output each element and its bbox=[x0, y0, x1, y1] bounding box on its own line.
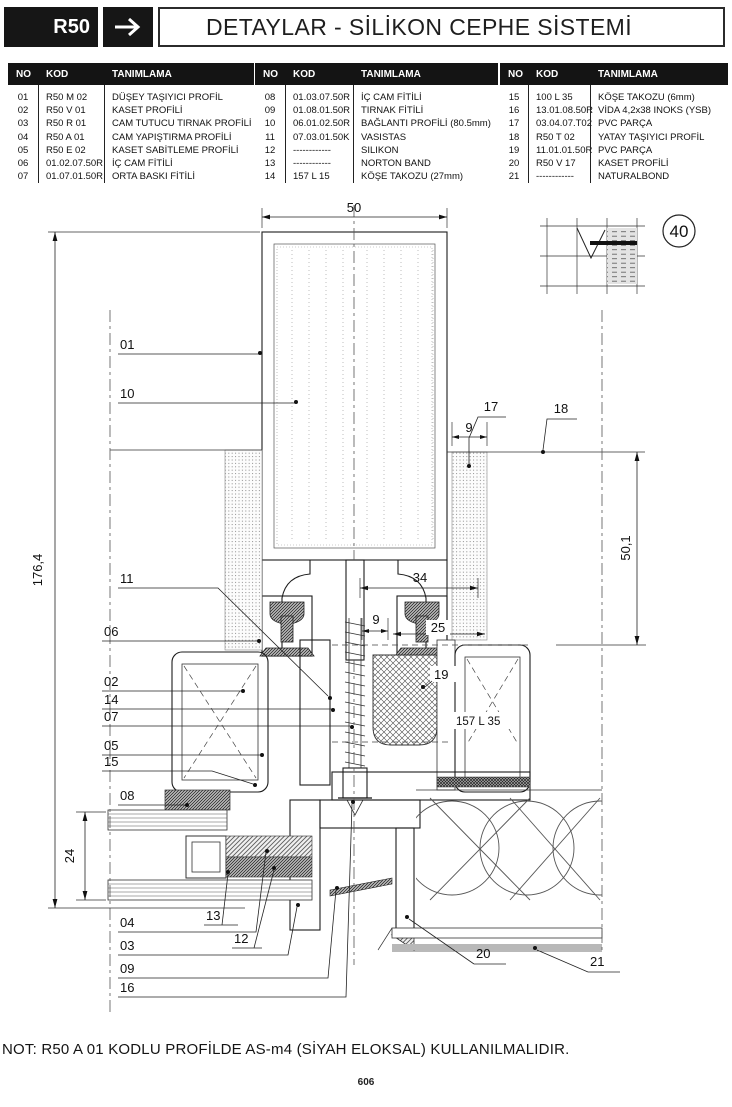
dim-width-50: 50 bbox=[262, 200, 447, 228]
callout-label: 11 bbox=[120, 571, 134, 586]
dim-label: 24 bbox=[62, 849, 77, 863]
callout-label: 03 bbox=[120, 938, 134, 953]
insulation bbox=[405, 790, 647, 900]
callout-label: 01 bbox=[120, 337, 134, 352]
callout-label: 16 bbox=[120, 980, 134, 995]
dim-9-right: 9 bbox=[452, 420, 487, 446]
callout-label: 10 bbox=[120, 386, 134, 401]
page-number: 606 bbox=[0, 1077, 732, 1088]
dim-label: 176,4 bbox=[30, 554, 45, 587]
detail-number-circle: 40 bbox=[663, 215, 695, 247]
callout-label: 19 bbox=[434, 667, 448, 682]
mullion-profile bbox=[262, 232, 447, 560]
callout-label: 09 bbox=[120, 961, 134, 976]
callout-label: 06 bbox=[104, 624, 118, 639]
callout-label: 14 bbox=[104, 692, 118, 707]
callout-label: 18 bbox=[554, 401, 568, 416]
callout-label: 15 bbox=[104, 754, 118, 769]
dim-label: 50 bbox=[347, 200, 361, 215]
note-text: NOT: R50 A 01 KODLU PROFİLDE AS-m4 (SİYA… bbox=[2, 1041, 569, 1058]
callout-label: 20 bbox=[476, 946, 490, 961]
callout-18: 18 bbox=[541, 401, 577, 454]
dim-glass-24: 24 bbox=[62, 812, 106, 900]
dim-label: 25 bbox=[431, 620, 445, 635]
dim-label: 34 bbox=[413, 570, 427, 585]
callout-label: 21 bbox=[590, 954, 604, 969]
callout-label: 17 bbox=[484, 399, 498, 414]
callout-20: 20 bbox=[405, 915, 506, 964]
callout-label: 04 bbox=[120, 915, 134, 930]
laminated-glass bbox=[108, 810, 312, 900]
technical-drawing: 40 50 176,4 24 9 17 18 50, bbox=[0, 0, 732, 1107]
part-label: 157 L 35 bbox=[456, 716, 500, 728]
left-cassette-profile bbox=[165, 652, 268, 810]
key-plan bbox=[540, 218, 645, 294]
callout-label: 12 bbox=[234, 931, 248, 946]
callout-label: 05 bbox=[104, 738, 118, 753]
part-label-157l35: 157 L 35 bbox=[452, 712, 514, 729]
callout-01: 01 bbox=[118, 337, 262, 355]
bottom-assembly bbox=[290, 800, 602, 951]
callout-label: 02 bbox=[104, 674, 118, 689]
callout-label: 07 bbox=[104, 709, 118, 724]
dim-label: 9 bbox=[372, 612, 379, 627]
callout-12: 12 bbox=[232, 866, 276, 948]
dim-height-50-1: 50,1 bbox=[556, 452, 646, 645]
callout-label: 08 bbox=[120, 788, 134, 803]
detail-number: 40 bbox=[670, 222, 689, 241]
dim-label: 50,1 bbox=[618, 535, 633, 560]
callout-10: 10 bbox=[118, 386, 298, 404]
callout-label: 13 bbox=[206, 908, 220, 923]
dim-9-center: 9 bbox=[362, 612, 388, 640]
